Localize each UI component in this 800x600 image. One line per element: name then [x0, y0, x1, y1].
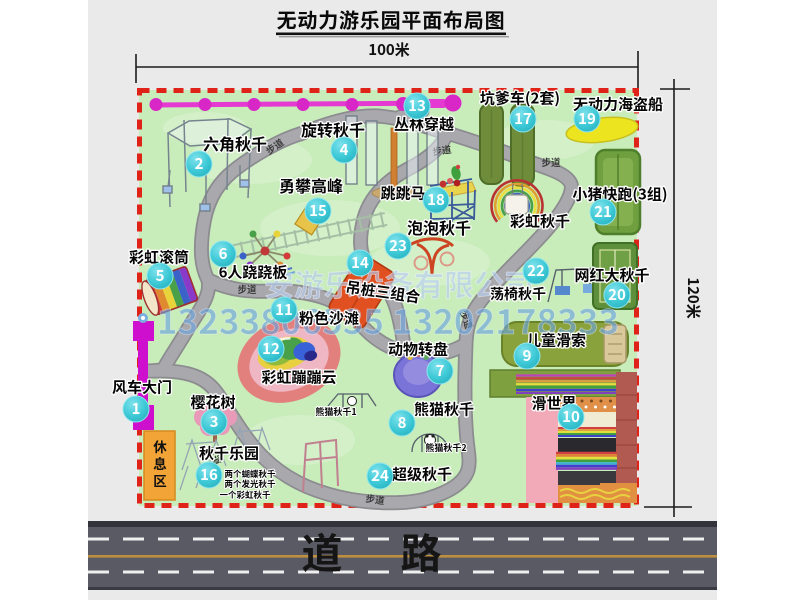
svg-text:区: 区 [153, 470, 167, 490]
svg-text:2: 2 [195, 153, 204, 174]
svg-text:彩虹蹦蹦云: 彩虹蹦蹦云 [261, 366, 336, 387]
svg-text:22: 22 [527, 260, 545, 281]
svg-text:21: 21 [594, 201, 612, 222]
svg-text:1: 1 [132, 398, 141, 419]
svg-text:荡椅秋千: 荡椅秋千 [490, 284, 546, 304]
svg-text:6: 6 [219, 243, 228, 264]
svg-text:16: 16 [200, 464, 218, 485]
svg-text:120米: 120米 [683, 277, 704, 319]
svg-text:无动力游乐园平面布局图: 无动力游乐园平面布局图 [277, 5, 506, 34]
svg-text:14: 14 [351, 252, 369, 273]
svg-text:17: 17 [514, 108, 532, 129]
svg-text:熊猫秋千: 熊猫秋千 [414, 398, 474, 419]
svg-text:网红大秋千: 网红大秋千 [574, 264, 649, 285]
svg-text:13: 13 [408, 95, 426, 116]
svg-text:15: 15 [309, 200, 327, 221]
svg-text:跳跳马: 跳跳马 [380, 182, 425, 203]
svg-text:小猪快跑(3组): 小猪快跑(3组) [572, 183, 667, 204]
svg-text:动物转盘: 动物转盘 [388, 338, 448, 359]
svg-text:熊猫秋千1: 熊猫秋千1 [315, 405, 356, 418]
svg-text:坑爹车(2套): 坑爹车(2套) [480, 87, 560, 108]
svg-text:勇攀高峰: 勇攀高峰 [279, 173, 343, 197]
svg-text:7: 7 [436, 360, 445, 381]
svg-text:彩虹秋千: 彩虹秋千 [510, 210, 570, 231]
svg-text:9: 9 [523, 345, 532, 366]
svg-text:18: 18 [427, 189, 445, 210]
svg-text:秋千乐园: 秋千乐园 [199, 442, 259, 463]
svg-text:一个彩虹秋千: 一个彩虹秋千 [219, 489, 271, 501]
svg-text:23: 23 [389, 235, 407, 256]
svg-text:超级秋千: 超级秋千 [392, 463, 452, 484]
svg-text:20: 20 [608, 284, 626, 305]
svg-text:道: 道 [302, 520, 343, 580]
svg-text:5: 5 [156, 265, 165, 286]
svg-text:19: 19 [578, 108, 596, 129]
svg-text:风车大门: 风车大门 [112, 376, 172, 397]
svg-text:六角秋千: 六角秋千 [203, 131, 267, 155]
svg-text:步道: 步道 [541, 155, 561, 169]
svg-text:步道: 步道 [365, 491, 386, 508]
svg-text:8: 8 [398, 412, 407, 433]
svg-text:旋转秋千: 旋转秋千 [301, 117, 365, 141]
svg-text:100米: 100米 [368, 39, 410, 60]
svg-text:11: 11 [275, 299, 293, 320]
svg-text:熊猫秋千2: 熊猫秋千2 [425, 441, 466, 454]
svg-text:粉色沙滩: 粉色沙滩 [299, 307, 359, 328]
svg-text:路: 路 [401, 520, 442, 580]
svg-text:3: 3 [210, 411, 219, 432]
svg-text:24: 24 [371, 465, 389, 486]
svg-text:4: 4 [340, 139, 349, 160]
svg-text:12: 12 [262, 338, 280, 359]
svg-text:泡泡秋千: 泡泡秋千 [407, 215, 471, 239]
svg-text:10: 10 [562, 406, 580, 427]
